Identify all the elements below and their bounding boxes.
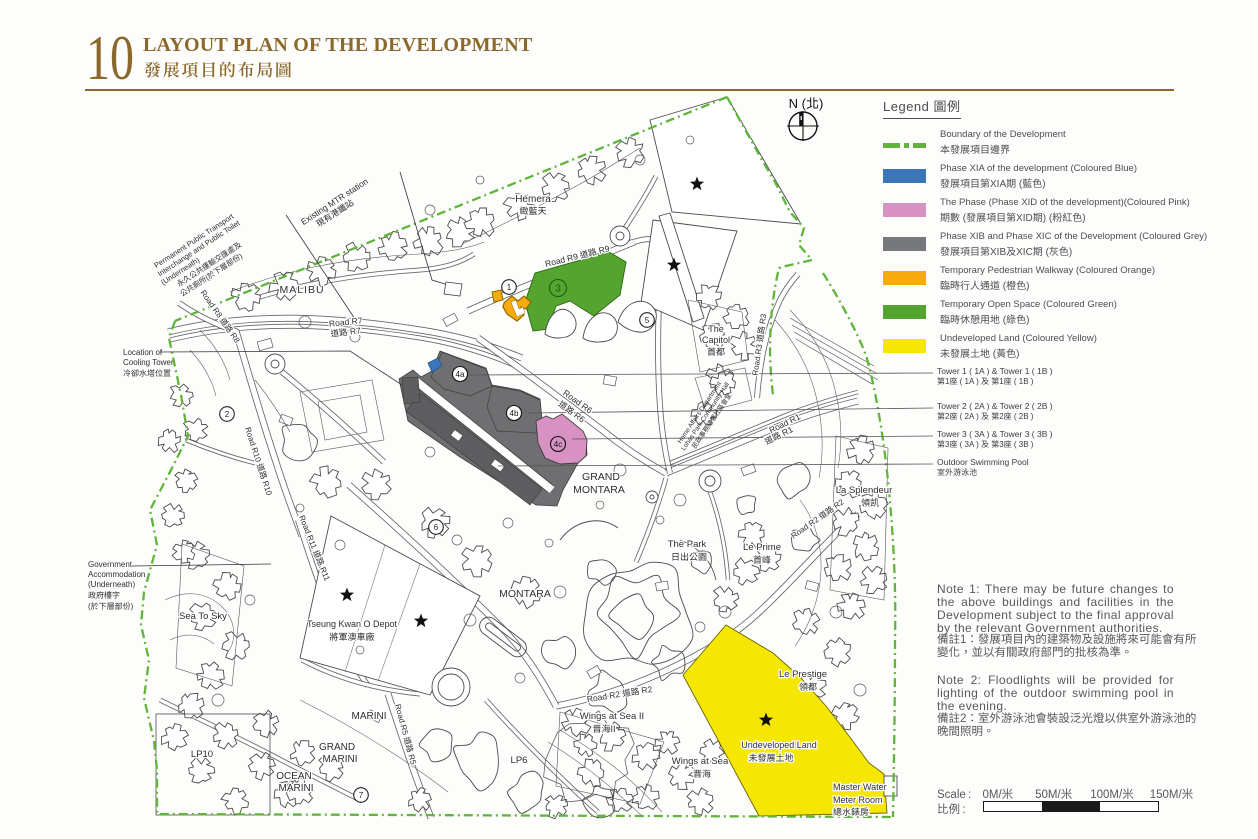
svg-text:Le Prestige: Le Prestige xyxy=(779,669,827,680)
svg-text:政府樓字: 政府樓字 xyxy=(88,591,120,600)
svg-text:緻藍天: 緻藍天 xyxy=(519,206,546,216)
svg-text:LP6: LP6 xyxy=(511,755,528,766)
svg-text:首峰: 首峰 xyxy=(753,555,771,565)
svg-text:N (北): N (北) xyxy=(789,96,824,111)
svg-text:MARINI: MARINI xyxy=(279,783,314,794)
svg-text:Government: Government xyxy=(88,560,133,569)
svg-text:GRAND: GRAND xyxy=(319,742,355,753)
svg-text:5: 5 xyxy=(645,316,650,325)
svg-text:LP10: LP10 xyxy=(191,749,213,760)
svg-text:Meter Room: Meter Room xyxy=(833,795,883,805)
svg-text:3: 3 xyxy=(555,284,561,295)
svg-text:Sea To Sky: Sea To Sky xyxy=(179,611,227,622)
svg-text:Master Water: Master Water xyxy=(833,782,887,792)
svg-text:晋海: 晋海 xyxy=(693,769,711,779)
svg-text:道路 R7: 道路 R7 xyxy=(330,325,361,338)
svg-text:Le Prime: Le Prime xyxy=(743,542,781,553)
svg-text:Undeveloped Land: Undeveloped Land xyxy=(741,740,817,750)
svg-text:領都: 領都 xyxy=(799,682,817,692)
svg-text:GRAND: GRAND xyxy=(582,471,620,483)
svg-text:Tseung Kwan O Depot: Tseung Kwan O Depot xyxy=(307,619,398,629)
svg-text:(Underneath): (Underneath) xyxy=(88,580,135,589)
svg-text:MARINI: MARINI xyxy=(352,711,387,722)
svg-text:未發展土地: 未發展土地 xyxy=(748,753,793,763)
svg-text:冷卻水塔位置: 冷卻水塔位置 xyxy=(123,369,171,378)
svg-text:MALIBU: MALIBU xyxy=(279,284,324,296)
svg-text:OCEAN: OCEAN xyxy=(276,771,312,782)
svg-text:Hemera: Hemera xyxy=(515,194,551,205)
svg-text:日出公園: 日出公園 xyxy=(671,552,707,562)
svg-text:Wings at Sea: Wings at Sea xyxy=(672,756,729,767)
svg-text:MONTARA: MONTARA xyxy=(573,484,625,496)
svg-text:4b: 4b xyxy=(510,409,519,418)
svg-text:晋海II: 晋海II xyxy=(592,724,615,734)
svg-text:將軍澳車廠: 將軍澳車廠 xyxy=(329,632,374,642)
svg-text:(於下層部份): (於下層部份) xyxy=(88,602,134,611)
svg-text:Capitol: Capitol xyxy=(702,335,730,345)
svg-text:The Park: The Park xyxy=(668,539,707,550)
svg-text:Cooling Tower: Cooling Tower xyxy=(123,358,174,367)
svg-text:Wings at Sea II: Wings at Sea II xyxy=(580,711,644,722)
svg-text:Location of: Location of xyxy=(123,348,163,357)
svg-text:The: The xyxy=(708,324,724,334)
svg-text:4c: 4c xyxy=(554,440,562,449)
svg-text:La Splendeur: La Splendeur xyxy=(836,485,893,496)
svg-text:領凯: 領凯 xyxy=(861,497,879,508)
svg-text:MONTARA: MONTARA xyxy=(499,588,551,600)
svg-text:MARINI: MARINI xyxy=(323,754,358,765)
svg-text:2: 2 xyxy=(225,410,230,419)
svg-text:首都: 首都 xyxy=(707,347,725,357)
svg-text:1: 1 xyxy=(507,283,512,292)
svg-text:6: 6 xyxy=(434,523,439,532)
svg-text:4a: 4a xyxy=(456,370,465,379)
svg-text:Accommodation: Accommodation xyxy=(88,570,145,579)
svg-text:7: 7 xyxy=(359,791,364,800)
svg-text:總水錶房: 總水錶房 xyxy=(833,807,869,817)
